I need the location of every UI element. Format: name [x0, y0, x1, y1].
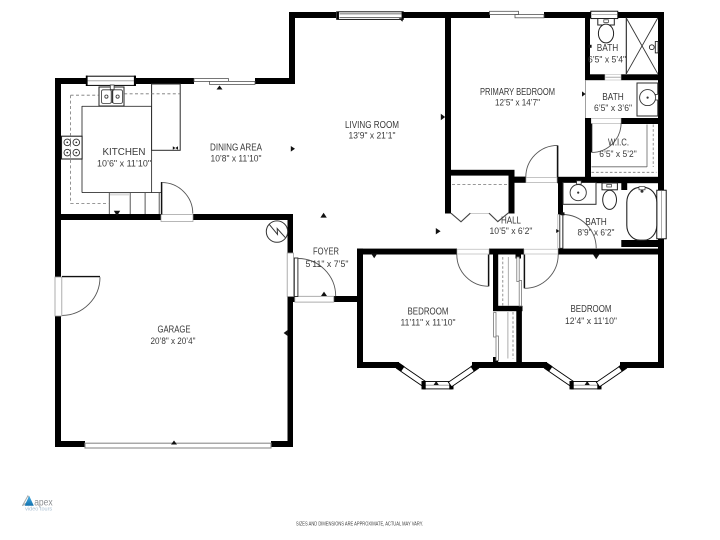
svg-text:10’8" x 11’10": 10’8" x 11’10"	[211, 154, 262, 165]
svg-text:W.I.C.: W.I.C.	[608, 137, 629, 148]
svg-text:BATH: BATH	[602, 92, 624, 103]
svg-text:BATH: BATH	[585, 217, 607, 228]
svg-text:KITCHEN: KITCHEN	[103, 147, 146, 158]
svg-text:BEDROOM: BEDROOM	[408, 306, 449, 317]
svg-text:11’11" x 11’10": 11’11" x 11’10"	[401, 318, 456, 329]
svg-text:PRIMARY BEDROOM: PRIMARY BEDROOM	[480, 87, 555, 98]
svg-text:FOYER: FOYER	[313, 246, 339, 257]
svg-text:SIZES AND DIMENSIONS ARE APPRO: SIZES AND DIMENSIONS ARE APPROXIMATE, AC…	[296, 522, 423, 528]
svg-text:5’11" x 7’5": 5’11" x 7’5"	[306, 259, 349, 270]
svg-text:6’5" x 5’2": 6’5" x 5’2"	[599, 149, 637, 160]
svg-text:12’4" x 11’10": 12’4" x 11’10"	[565, 316, 617, 327]
svg-text:video tours: video tours	[25, 507, 53, 513]
svg-text:10’5" x 6’2": 10’5" x 6’2"	[490, 226, 533, 237]
svg-text:DINING AREA: DINING AREA	[210, 143, 262, 154]
svg-text:GARAGE: GARAGE	[158, 324, 191, 335]
svg-text:LIVING ROOM: LIVING ROOM	[345, 120, 399, 131]
svg-text:6’5" x 3’6": 6’5" x 3’6"	[594, 103, 632, 114]
svg-text:6’5" x 5’4": 6’5" x 5’4"	[588, 54, 626, 65]
svg-text:13’9" x 21’1": 13’9" x 21’1"	[349, 131, 396, 142]
svg-text:8’9" x 6’2": 8’9" x 6’2"	[578, 227, 615, 238]
svg-text:10’6" x 11’10": 10’6" x 11’10"	[97, 159, 151, 170]
svg-text:BEDROOM: BEDROOM	[571, 304, 612, 315]
svg-text:HALL: HALL	[501, 215, 521, 226]
svg-text:BATH: BATH	[597, 43, 619, 54]
svg-text:12’5" x 14’7": 12’5" x 14’7"	[495, 98, 540, 109]
svg-text:20’8" x 20’4": 20’8" x 20’4"	[151, 336, 196, 347]
